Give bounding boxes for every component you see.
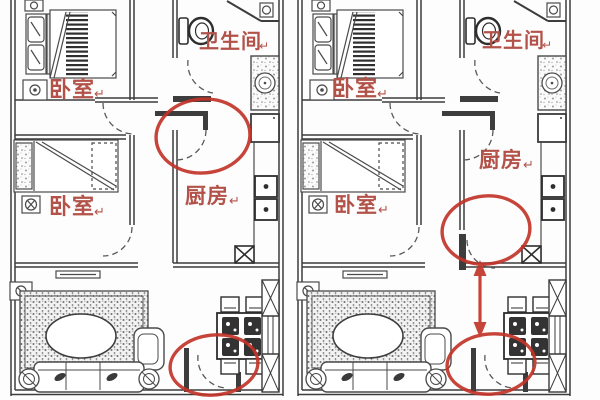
return-mark: ↵ (523, 158, 534, 173)
return-mark: ↵ (378, 203, 389, 218)
floor-plan-canvas: 卧室 ↵ 卫生间 ↵ 卧室 ↵ 厨房 ↵ 卧室 ↵ 卫生间 ↵ 卧室 ↵ 厨房 … (0, 0, 600, 400)
room-label-bedroom-top-right: 卧室 (332, 76, 378, 102)
return-mark: ↵ (94, 87, 105, 102)
room-label-kitchen-left: 厨房 (185, 184, 229, 208)
relocated-door-wall-stub (459, 234, 466, 270)
return-mark: ↵ (94, 205, 105, 220)
floor-plan-image: 卧室 ↵ 卫生间 ↵ 卧室 ↵ 厨房 ↵ 卧室 ↵ 卫生间 ↵ 卧室 ↵ 厨房 … (0, 0, 600, 400)
room-label-bedroom-mid-left: 卧室 (49, 194, 95, 220)
room-label-bathroom-right: 卫生间 (482, 28, 545, 52)
room-label-bedroom-top-left: 卧室 (49, 77, 95, 103)
return-mark: ↵ (542, 38, 552, 52)
return-mark: ↵ (229, 194, 240, 209)
room-label-bedroom-mid-right: 卧室 (334, 193, 378, 217)
return-mark: ↵ (377, 87, 388, 102)
room-label-bathroom-left: 卫生间 (199, 29, 262, 53)
room-label-kitchen-right: 厨房 (479, 148, 523, 172)
return-mark: ↵ (259, 39, 269, 53)
